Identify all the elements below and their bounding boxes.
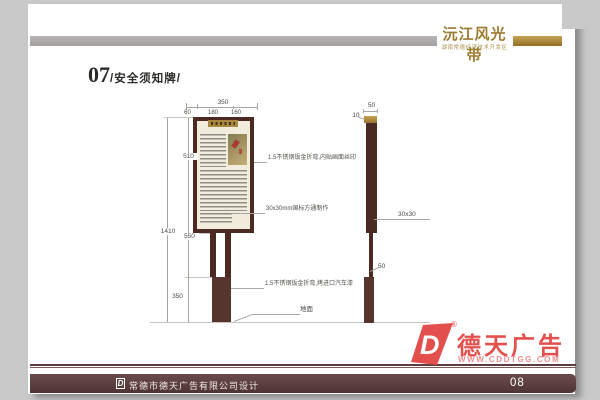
front-leg-right bbox=[225, 233, 231, 277]
side-base bbox=[364, 277, 374, 323]
dim-width-segment: 160 bbox=[226, 110, 246, 117]
dimension-tick bbox=[197, 104, 198, 109]
plaque-text-marks bbox=[211, 122, 235, 125]
dimension-tick bbox=[186, 103, 187, 110]
svg-text:D: D bbox=[420, 330, 440, 360]
leader-line bbox=[231, 213, 265, 214]
dimension-line bbox=[167, 118, 168, 322]
signboard-plaque bbox=[208, 120, 238, 127]
dim-width-segment: 60 bbox=[181, 110, 194, 117]
watermark-url: WWW.CDDTGG.COM bbox=[458, 355, 560, 364]
notice-image bbox=[228, 134, 247, 165]
leader-line bbox=[231, 288, 264, 289]
watermark-logo: D ® 德天广告 WWW.CDDTGG.COM bbox=[406, 320, 582, 368]
section-number: 07 bbox=[88, 62, 110, 88]
notice-text-lines bbox=[200, 134, 226, 167]
ground-leader bbox=[252, 314, 300, 315]
notice-image-red-detail bbox=[239, 149, 242, 154]
page-background: 沅江风光带 湖南常德经济技术开发区 07 /安全须知牌/ 350 60 180 … bbox=[0, 0, 600, 400]
dim-total-height: 1410 bbox=[155, 228, 181, 235]
annotation-base: 1.5不锈钢钣金折弯,烤进口汽车漆 bbox=[265, 281, 353, 288]
notice-text-lines bbox=[200, 170, 247, 211]
ground-line bbox=[150, 322, 430, 323]
leader-line bbox=[254, 162, 267, 163]
section-title: /安全须知牌/ bbox=[110, 70, 181, 86]
dim-base-height: 350 bbox=[168, 293, 187, 300]
header-gold-bar bbox=[513, 36, 562, 46]
dim-width-segment: 180 bbox=[203, 110, 223, 117]
footer-bar bbox=[30, 374, 576, 393]
notice-image-red-detail bbox=[231, 139, 240, 148]
side-dim-base: 50 bbox=[378, 263, 385, 270]
ground-label: 地面 bbox=[300, 306, 313, 313]
leader-line bbox=[374, 219, 430, 220]
annotation-tube: 30x30mm国标方通制作 bbox=[266, 206, 328, 213]
dim-width-total: 350 bbox=[210, 99, 236, 106]
background-corner bbox=[562, 0, 600, 29]
dimension-line bbox=[188, 118, 189, 322]
header-gray-bar bbox=[30, 36, 437, 46]
extension-line bbox=[185, 277, 212, 278]
front-base bbox=[212, 277, 231, 323]
footer-page-number: 08 bbox=[510, 377, 525, 389]
notice-text-lines bbox=[200, 213, 232, 224]
dimension-line bbox=[363, 111, 378, 112]
brand-subtitle: 湖南常德经济技术开发区 bbox=[436, 43, 513, 51]
front-leg-left bbox=[210, 233, 216, 277]
section-heading: 07 /安全须知牌/ bbox=[88, 62, 181, 88]
side-dim-tube: 30x30 bbox=[398, 211, 416, 218]
dt-logo-mark-icon: D bbox=[406, 321, 454, 367]
dim-pole-height: 550 bbox=[180, 233, 199, 240]
footer-logo-icon: D bbox=[116, 378, 125, 389]
side-dim-width: 50 bbox=[362, 102, 381, 109]
side-panel-body bbox=[366, 123, 377, 233]
dim-board-height: 510 bbox=[179, 153, 198, 160]
dimension-tick bbox=[257, 103, 258, 110]
footer-company: 常德市德天广告有限公司设计 bbox=[129, 379, 259, 392]
side-panel-cap bbox=[364, 116, 377, 123]
annotation-panel: 1.5不锈钢钣金折弯,内贴画面丝印 bbox=[268, 155, 356, 162]
